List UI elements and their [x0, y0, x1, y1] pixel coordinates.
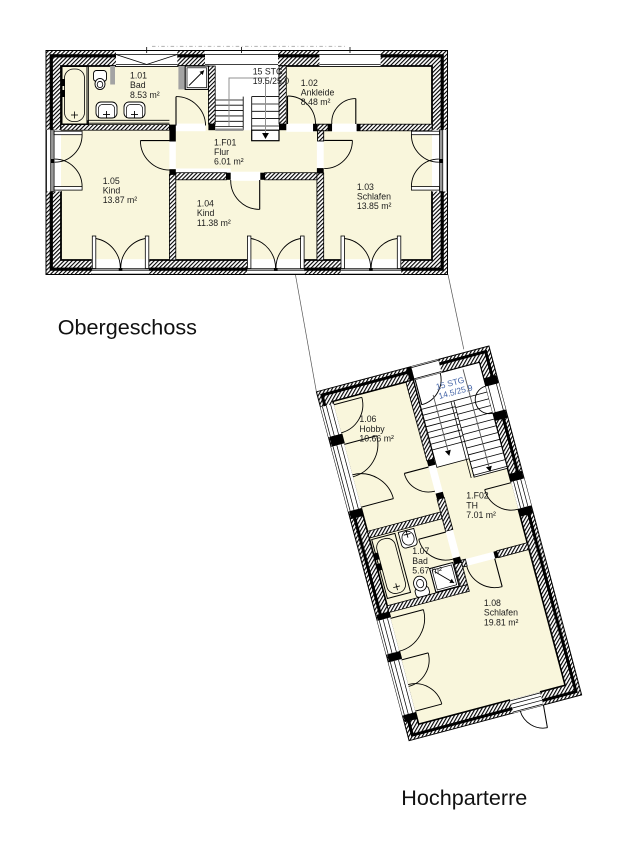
svg-text:Bad: Bad [412, 556, 428, 566]
svg-text:1.F02: 1.F02 [466, 491, 489, 501]
svg-text:Ankleide: Ankleide [301, 88, 335, 98]
svg-text:Flur: Flur [214, 147, 229, 157]
svg-text:Kind: Kind [197, 208, 215, 218]
svg-text:Hobby: Hobby [359, 424, 385, 434]
svg-text:1.05: 1.05 [103, 176, 120, 186]
svg-text:15 STG: 15 STG [253, 67, 283, 77]
svg-text:Bad: Bad [130, 80, 146, 90]
svg-text:10.66 m²: 10.66 m² [359, 434, 394, 444]
svg-text:13.87 m²: 13.87 m² [103, 195, 138, 205]
svg-text:1.02: 1.02 [301, 78, 318, 88]
svg-text:6.01 m²: 6.01 m² [214, 157, 244, 167]
svg-text:Kind: Kind [103, 186, 121, 196]
svg-text:1.01: 1.01 [130, 70, 147, 80]
svg-text:Hochparterre: Hochparterre [401, 785, 527, 810]
svg-text:5.67 m²: 5.67 m² [412, 566, 442, 576]
svg-text:1.08: 1.08 [484, 598, 501, 608]
svg-text:1.04: 1.04 [197, 199, 214, 209]
svg-text:Obergeschoss: Obergeschoss [58, 315, 197, 340]
svg-text:Schlafen: Schlafen [484, 608, 518, 618]
svg-text:8.53 m²: 8.53 m² [130, 90, 160, 100]
svg-text:1.06: 1.06 [359, 414, 376, 424]
svg-text:TH: TH [466, 500, 478, 510]
svg-text:8.48 m²: 8.48 m² [301, 97, 331, 107]
svg-text:1.07: 1.07 [412, 546, 429, 556]
svg-text:1.03: 1.03 [357, 182, 374, 192]
svg-text:1.F01: 1.F01 [214, 137, 237, 147]
svg-text:11.38 m²: 11.38 m² [197, 218, 231, 228]
svg-text:19.5/25.0: 19.5/25.0 [253, 76, 290, 86]
svg-text:19.81 m²: 19.81 m² [484, 617, 519, 627]
svg-text:13.85 m²: 13.85 m² [357, 201, 392, 211]
svg-text:7.01 m²: 7.01 m² [466, 510, 496, 520]
svg-text:Schlafen: Schlafen [357, 192, 391, 202]
